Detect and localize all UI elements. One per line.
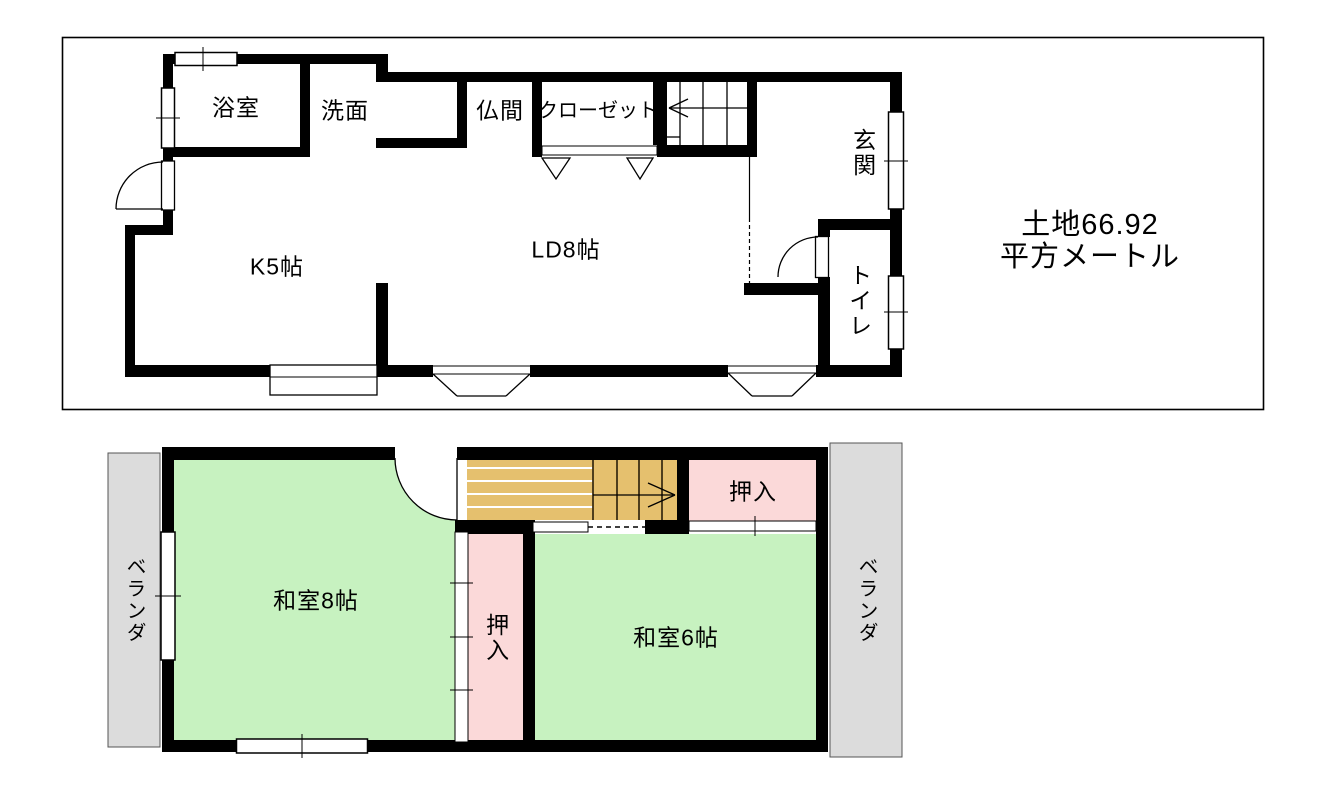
label-land-area-line2: 平方メートル: [1000, 242, 1180, 274]
label-land-area-line1: 土地66.92: [1021, 210, 1159, 242]
floorplan-page: 浴室 洗面 仏間 クローゼット K5帖 LD8帖 玄関 トイレ 土地66.92 …: [0, 0, 1326, 793]
bath-left-window: [156, 88, 180, 148]
closet-opening: [542, 146, 657, 179]
label-oshiire-middle: 押入: [482, 613, 507, 663]
floorplan-svg: [0, 0, 1326, 793]
kitchen-bay-window: [270, 365, 377, 395]
label-living-dining: LD8帖: [531, 237, 600, 262]
label-veranda-left: ベランダ: [123, 556, 145, 644]
floor2-plan: [108, 443, 902, 758]
folding-door-triangle-icon: [542, 158, 570, 179]
label-closet: クローゼット: [538, 100, 658, 122]
label-japanese-room-6: 和室6帖: [633, 625, 719, 650]
stairs-hall-opening: [533, 522, 645, 532]
label-bath: 浴室: [212, 95, 260, 120]
label-butsuma: 仏間: [476, 98, 524, 123]
ld-bay-window-2: [728, 364, 816, 397]
label-japanese-room-8: 和室8帖: [273, 588, 359, 613]
bath-top-window: [175, 47, 237, 71]
folding-door-triangle-icon: [627, 158, 653, 179]
ld-bay-window: [433, 364, 530, 397]
label-kitchen: K5帖: [250, 254, 304, 279]
label-washroom: 洗面: [321, 98, 369, 123]
floor1-stairs: [667, 82, 747, 145]
toilet-right-window: [884, 276, 908, 349]
toilet-door: [778, 237, 829, 278]
label-toilet: トイレ: [845, 264, 870, 339]
label-entrance: 玄関: [849, 128, 874, 178]
kitchen-door: [116, 161, 175, 210]
label-oshiire-upper: 押入: [729, 479, 777, 504]
label-veranda-right: ベランダ: [855, 556, 877, 644]
entrance-right-window: [884, 112, 908, 209]
